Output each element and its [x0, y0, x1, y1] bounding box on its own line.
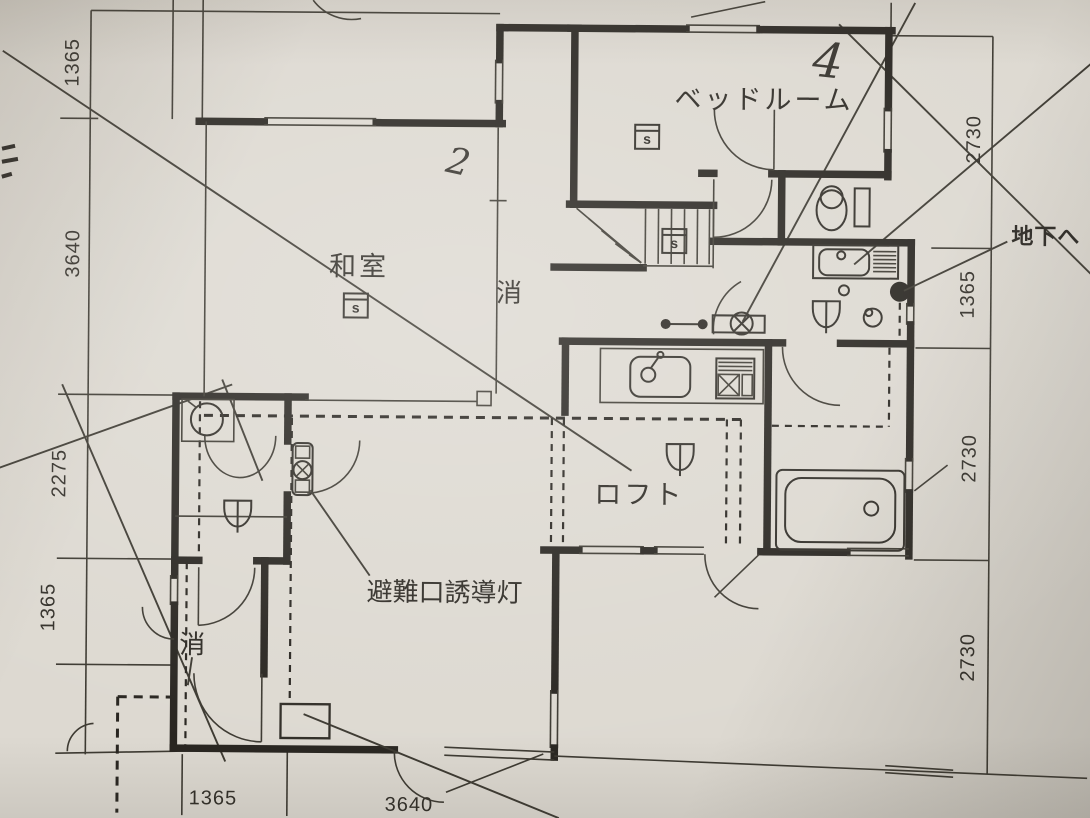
- interior-lines: [173, 121, 1090, 778]
- exit-light-icon: [292, 443, 312, 495]
- smoke-detector-bedroom: s: [635, 125, 659, 149]
- exit-light-label: 避難口誘導灯: [366, 578, 522, 608]
- leader-lines: [188, 489, 371, 686]
- dim-right-2730-mid: 2730: [958, 434, 980, 483]
- stove-icon: [716, 358, 754, 398]
- dim-left-1365-bottom: 1365: [37, 583, 59, 632]
- dim-left-2275: 2275: [48, 449, 70, 498]
- washing-machine-icon: [182, 399, 234, 441]
- dim-bottom-1365: 1365: [189, 787, 238, 809]
- annotation-lines: [0, 0, 1090, 768]
- floor-plan-photo: s s s ベッドルーム 和室 ロフト 消 消 地下へ 避難口誘導灯 4 2 1…: [0, 0, 1090, 818]
- bathtub-icon: [776, 470, 905, 551]
- dim-bottom-3640: 3640: [385, 794, 434, 816]
- detector-label: s: [643, 131, 651, 147]
- stairs: [576, 208, 709, 264]
- floor-plan-drawing: s s s ベッドルーム 和室 ロフト 消 消 地下へ 避難口誘導灯 4 2 1…: [0, 0, 1090, 818]
- detector-label: s: [352, 299, 360, 315]
- edge-clipped-text: [2, 146, 18, 177]
- loft-label: ロフト: [594, 479, 684, 510]
- light-fixture-icon: [661, 312, 765, 335]
- smoke-detector-washitsu: s: [344, 293, 368, 317]
- dim-left-1365-top: 1365: [62, 38, 84, 87]
- toilet-icon: [816, 186, 869, 230]
- handwritten-4: 4: [809, 31, 847, 90]
- detector-label: s: [670, 235, 678, 251]
- extinguisher-lower-label: 消: [179, 630, 205, 659]
- dim-right-1365: 1365: [957, 270, 979, 319]
- extinguisher-upper-label: 消: [496, 279, 522, 308]
- japanese-room-label: 和室: [329, 251, 389, 281]
- dim-right-2730-top: 2730: [963, 115, 985, 164]
- dashed-lines: [117, 297, 900, 818]
- dim-left-3640: 3640: [62, 229, 84, 278]
- handwritten-2: 2: [442, 140, 474, 185]
- dim-right-2730-bottom: 2730: [957, 633, 979, 682]
- to-basement-label: 地下へ: [1011, 224, 1080, 250]
- smoke-detector-stairs: s: [662, 229, 686, 253]
